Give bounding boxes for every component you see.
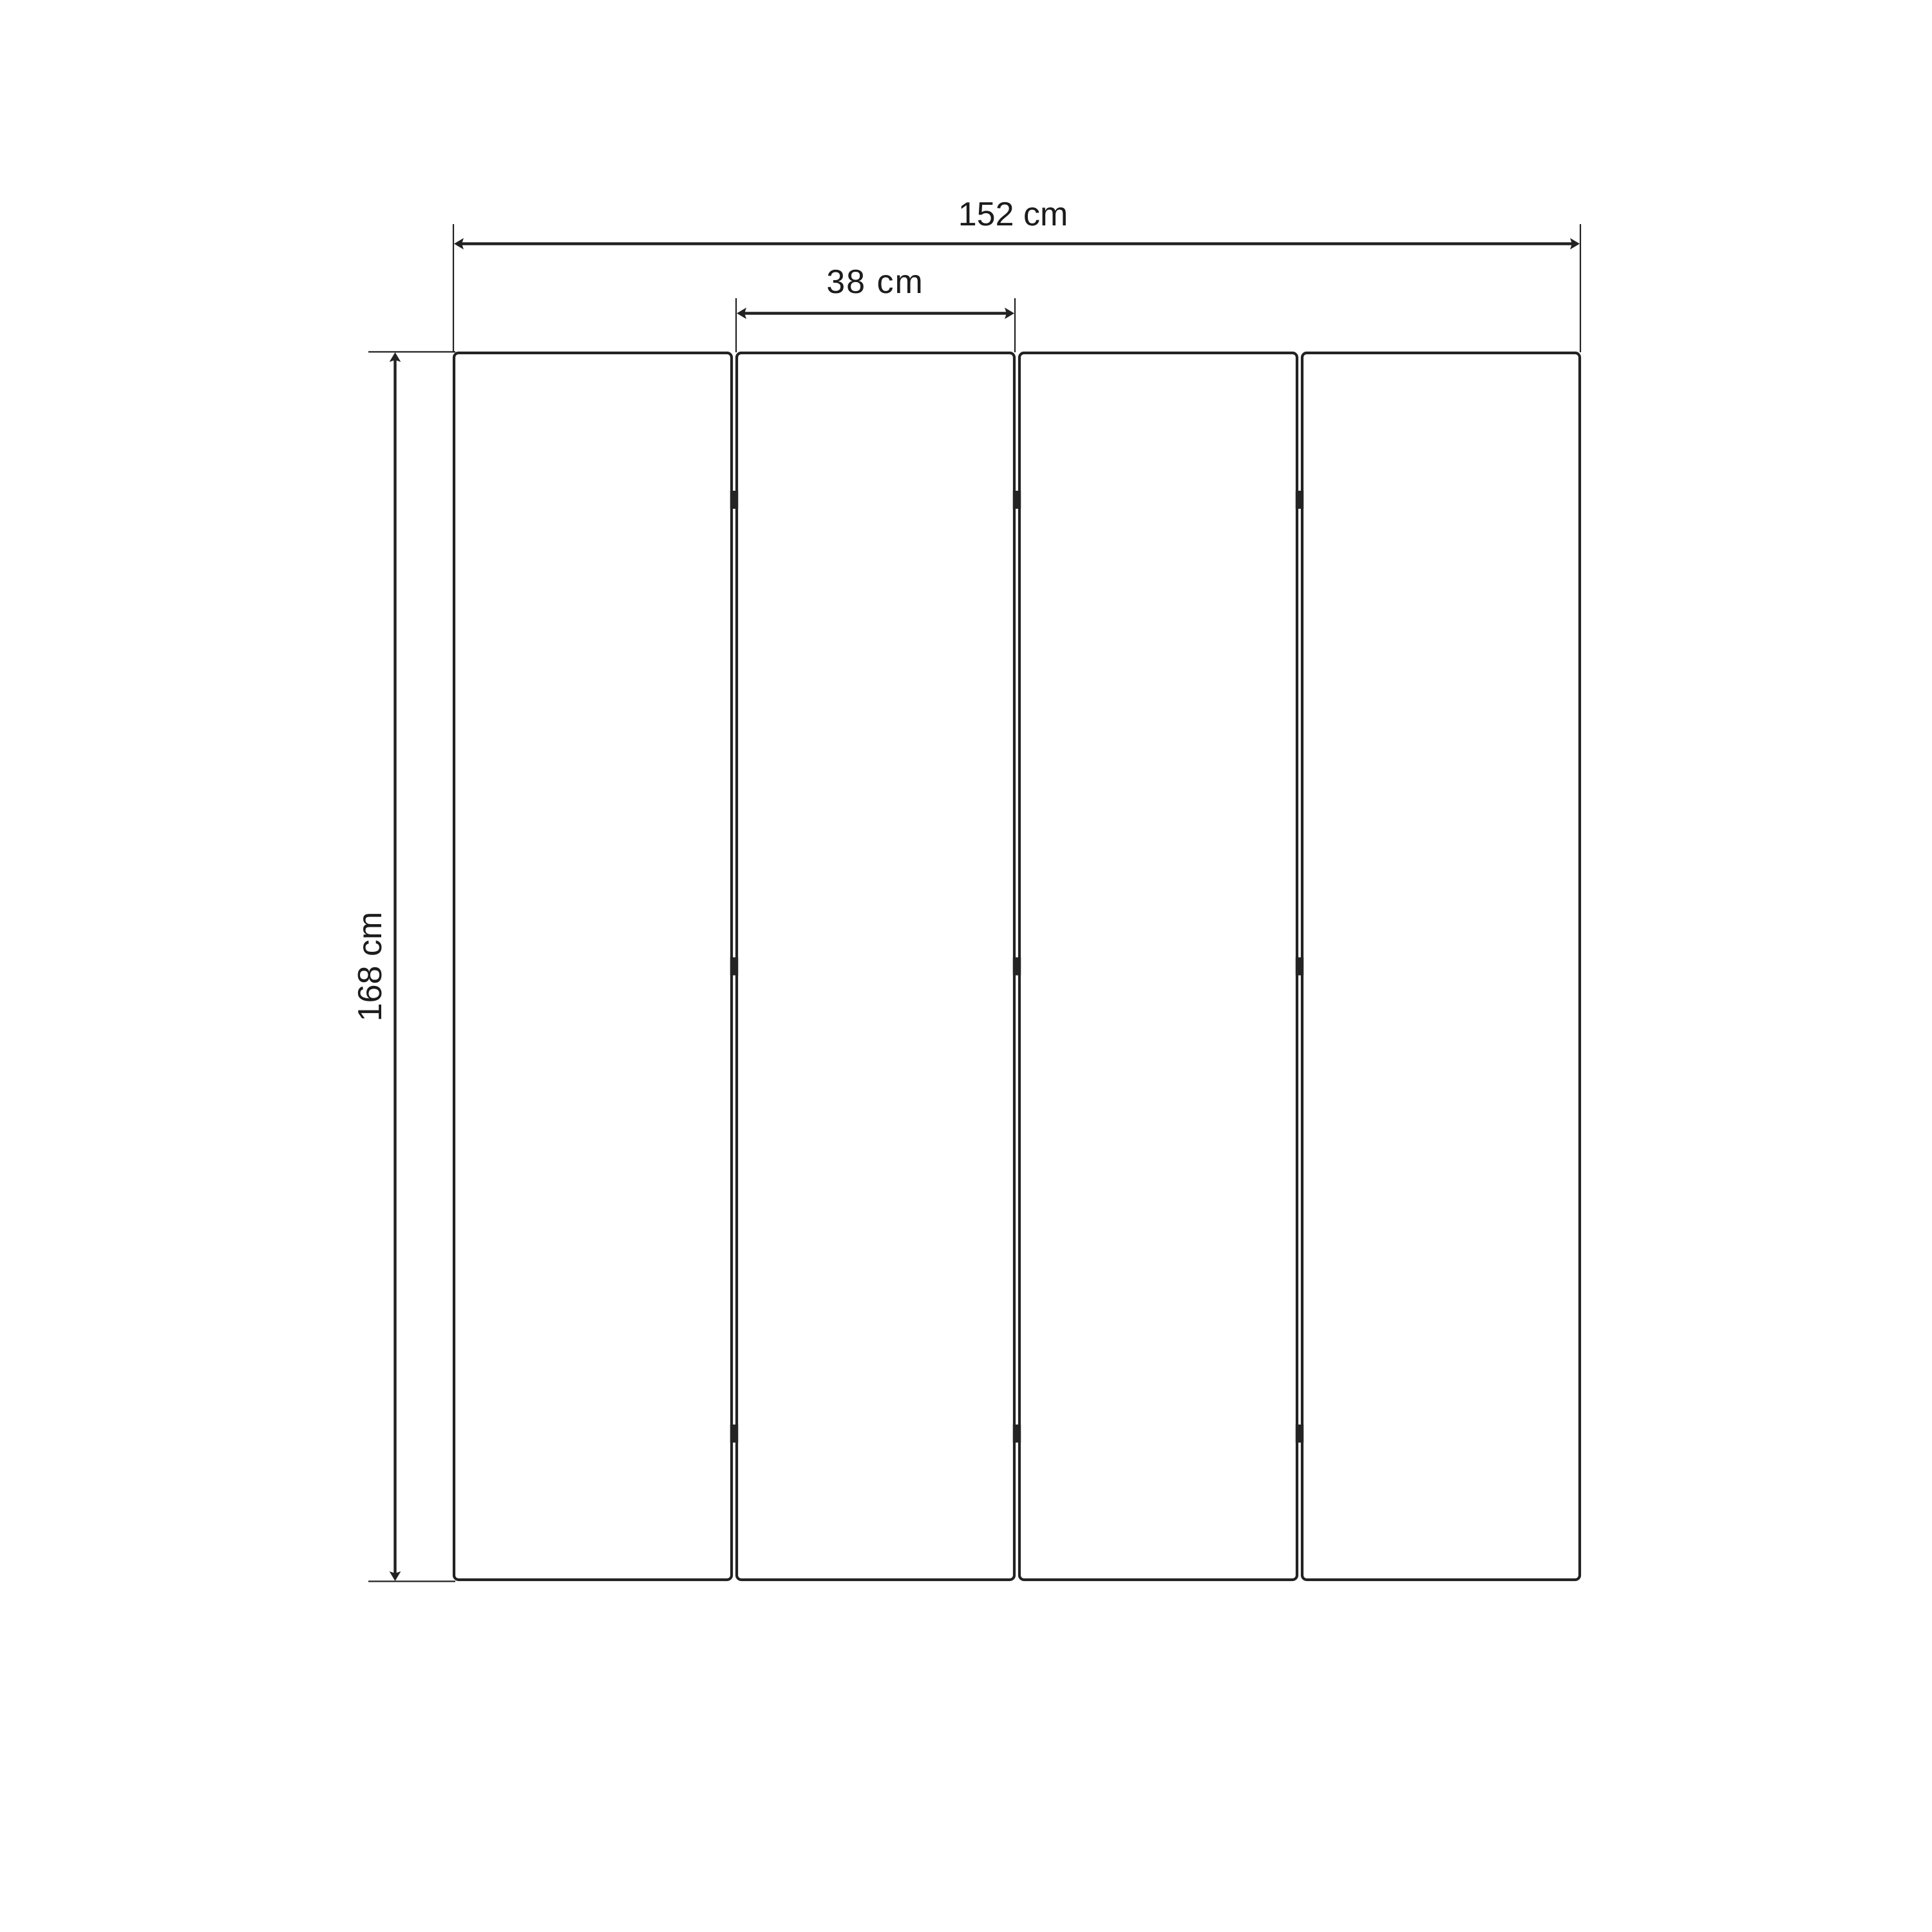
svg-text:152 cm: 152 cm bbox=[958, 196, 1068, 233]
svg-text:38 cm: 38 cm bbox=[826, 263, 924, 301]
svg-text:168 cm: 168 cm bbox=[352, 912, 389, 1022]
